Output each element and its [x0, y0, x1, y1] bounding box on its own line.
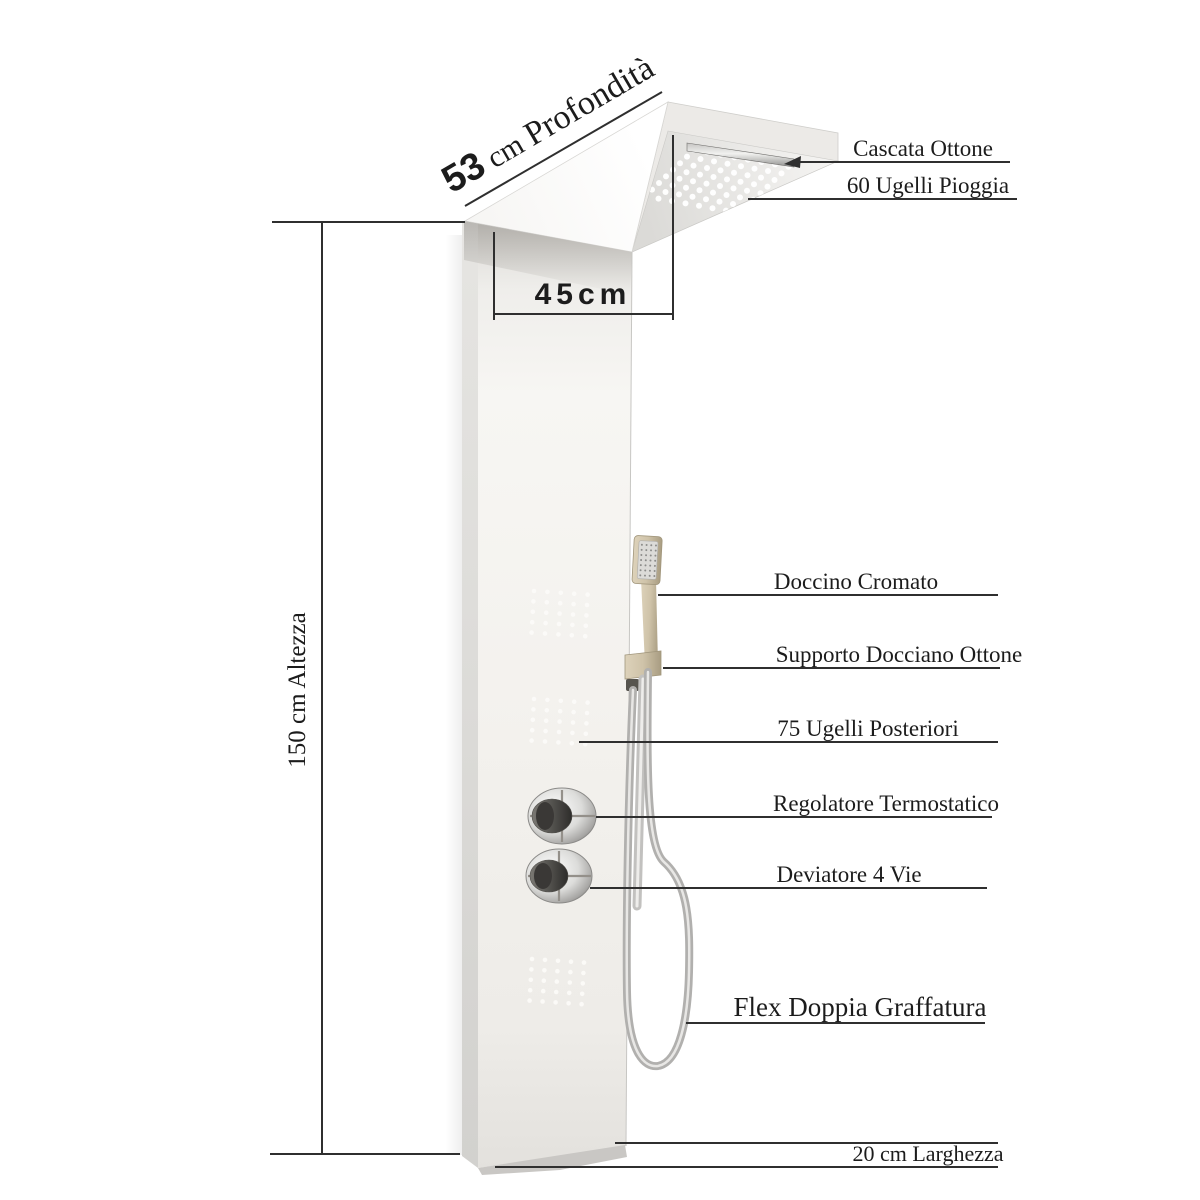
nozzle-dot: [676, 191, 682, 197]
nozzle-dot: [557, 622, 562, 627]
nozzle-dot: [697, 187, 703, 193]
nozzle-dot: [731, 185, 737, 191]
nozzle-dot: [545, 600, 550, 605]
nozzle-dot: [554, 990, 559, 995]
nozzle-dot: [744, 203, 750, 209]
nozzle-dot: [542, 978, 547, 983]
nozzle-dot: [717, 199, 723, 205]
nozzle-dot: [724, 192, 730, 198]
nozzle-dot: [737, 194, 743, 200]
nozzle-dot: [684, 154, 690, 160]
nozzle-dot: [663, 189, 669, 195]
nozzle-dot: [531, 718, 536, 723]
nozzle-dot: [730, 201, 736, 207]
flex-hose: [627, 672, 689, 1066]
nozzle-dot: [529, 978, 534, 983]
nozzle-dot: [744, 188, 750, 194]
nozzle-dot: [553, 1000, 558, 1005]
nozzle-dot: [555, 979, 560, 984]
nozzle-dot: [545, 698, 550, 703]
nozzle-dot: [531, 599, 536, 604]
nozzle-dot: [738, 179, 744, 185]
column-left-side: [462, 221, 478, 1168]
nozzle-dot: [751, 181, 757, 187]
nozzle-dot: [557, 730, 562, 735]
doccino-label: Doccino Cromato: [774, 569, 938, 594]
nozzle-dot: [725, 161, 731, 167]
nozzle-dot: [580, 992, 585, 997]
nozzle-dot: [758, 175, 764, 181]
nozzle-dot: [527, 998, 532, 1003]
nozzle-dot: [579, 1002, 584, 1007]
nozzle-dot: [765, 184, 771, 190]
nozzle-dot: [569, 959, 574, 964]
nozzle-dot: [558, 601, 563, 606]
nozzle-dot: [556, 632, 561, 637]
nozzle-dot: [737, 210, 743, 216]
diverter-knob: [526, 849, 592, 903]
nozzle-dot: [572, 591, 577, 596]
nozzle-dot: [529, 967, 534, 972]
nozzle-dot: [556, 740, 561, 745]
nozzle-dot: [704, 181, 710, 187]
nozzle-dot: [698, 156, 704, 162]
nozzle-dot: [557, 611, 562, 616]
nozzle-dot: [531, 610, 536, 615]
nozzle-dot: [529, 630, 534, 635]
product-dimension-diagram: 53 cm Profondità 45cm 150 cm Altezza Cas…: [0, 0, 1200, 1200]
nozzle-dot: [583, 634, 588, 639]
supporto-label: Supporto Docciano Ottone: [776, 642, 1023, 667]
nozzle-dot: [530, 620, 535, 625]
nozzle-dot: [543, 621, 548, 626]
nozzle-dot: [545, 708, 550, 713]
nozzle-dot: [752, 166, 758, 172]
cascata-label: Cascata Ottone: [853, 136, 993, 161]
nozzle-dot: [779, 170, 785, 176]
nozzle-dot: [544, 718, 549, 723]
nozzle-dot: [568, 970, 573, 975]
nozzle-dot: [572, 699, 577, 704]
nozzle-dot: [545, 590, 550, 595]
nozzle-dot: [710, 205, 716, 211]
wall-shadow: [445, 235, 463, 1155]
top-width-label: 45cm: [535, 278, 632, 311]
nozzle-dot: [584, 732, 589, 737]
nozzle-dot: [683, 200, 689, 206]
nozzle-dot: [710, 190, 716, 196]
nozzle-dot: [663, 173, 669, 179]
nozzle-dot: [540, 999, 545, 1004]
nozzle-dot: [556, 959, 561, 964]
bottom-width-label: 20 cm Larghezza: [852, 1141, 1003, 1166]
nozzle-dot: [557, 719, 562, 724]
nozzle-dot: [703, 196, 709, 202]
nozzle-dot: [683, 185, 689, 191]
nozzle-dot: [570, 741, 575, 746]
flex-label: Flex Doppia Graffatura: [734, 992, 987, 1022]
nozzle-dot: [584, 721, 589, 726]
shower-column: [462, 221, 632, 1175]
column-front-face: [478, 224, 632, 1168]
nozzle-dot: [543, 739, 548, 744]
nozzle-dot: [530, 957, 535, 962]
nozzle-dot: [696, 203, 702, 209]
nozzle-dot: [570, 623, 575, 628]
nozzle-dot: [582, 960, 587, 965]
hand-shower: [625, 535, 664, 691]
nozzle-dot: [528, 988, 533, 993]
nozzle-dot: [684, 169, 690, 175]
nozzle-dot: [541, 989, 546, 994]
nozzle-dot: [532, 697, 537, 702]
nozzle-dot: [697, 172, 703, 178]
nozzle-dot: [656, 196, 662, 202]
nozzle-dot: [585, 700, 590, 705]
nozzle-dot: [585, 603, 590, 608]
nozzle-dot: [555, 969, 560, 974]
nozzle-dot: [544, 610, 549, 615]
nozzle-dot: [559, 699, 564, 704]
nozzle-dot: [558, 709, 563, 714]
nozzle-dot: [745, 172, 751, 178]
nozzle-dot: [765, 168, 771, 174]
nozzle-dot: [532, 589, 537, 594]
nozzle-dot: [772, 177, 778, 183]
pioggia-label: 60 Ugelli Pioggia: [847, 173, 1009, 198]
nozzle-dot: [530, 728, 535, 733]
regolatore-label: Regolatore Termostatico: [773, 791, 999, 816]
nozzle-dot: [717, 183, 723, 189]
nozzle-dot: [738, 163, 744, 169]
nozzle-dot: [690, 194, 696, 200]
nozzle-dot: [559, 591, 564, 596]
nozzle-dot: [718, 167, 724, 173]
nozzle-dot: [731, 170, 737, 176]
hand-shower-handle: [637, 580, 662, 662]
nozzle-dot: [724, 176, 730, 182]
nozzle-dot: [531, 707, 536, 712]
nozzle-dot: [691, 163, 697, 169]
diagram-canvas: 53 cm Profondità 45cm 150 cm Altezza Cas…: [0, 0, 1200, 1200]
nozzle-dot: [584, 624, 589, 629]
nozzle-dot: [585, 592, 590, 597]
nozzle-dot: [711, 158, 717, 164]
nozzle-dot: [711, 174, 717, 180]
nozzle-dot: [581, 981, 586, 986]
nozzle-dot: [568, 980, 573, 985]
nozzle-dot: [567, 991, 572, 996]
nozzle-dot: [570, 633, 575, 638]
nozzle-dot: [571, 710, 576, 715]
posteriori-label: 75 Ugelli Posteriori: [777, 716, 958, 741]
nozzle-dot: [656, 180, 662, 186]
nozzle-dot: [543, 631, 548, 636]
nozzle-dot: [584, 613, 589, 618]
height-label: 150 cm Altezza: [284, 612, 311, 768]
nozzle-dot: [690, 178, 696, 184]
nozzle-dot: [585, 711, 590, 716]
nozzle-dot: [543, 958, 548, 963]
nozzle-dot: [542, 968, 547, 973]
nozzle-dot: [581, 971, 586, 976]
nozzle-dot: [677, 176, 683, 182]
thermostatic-knob: [528, 788, 596, 844]
nozzle-dot: [571, 602, 576, 607]
nozzle-dot: [543, 729, 548, 734]
nozzle-dot: [571, 612, 576, 617]
nozzle-dot: [677, 160, 683, 166]
nozzle-dot: [704, 165, 710, 171]
nozzle-dot: [570, 731, 575, 736]
nozzle-dot: [571, 720, 576, 725]
deviatore-label: Deviatore 4 Vie: [776, 862, 921, 887]
nozzle-dot: [529, 738, 534, 743]
nozzle-dot: [566, 1001, 571, 1006]
